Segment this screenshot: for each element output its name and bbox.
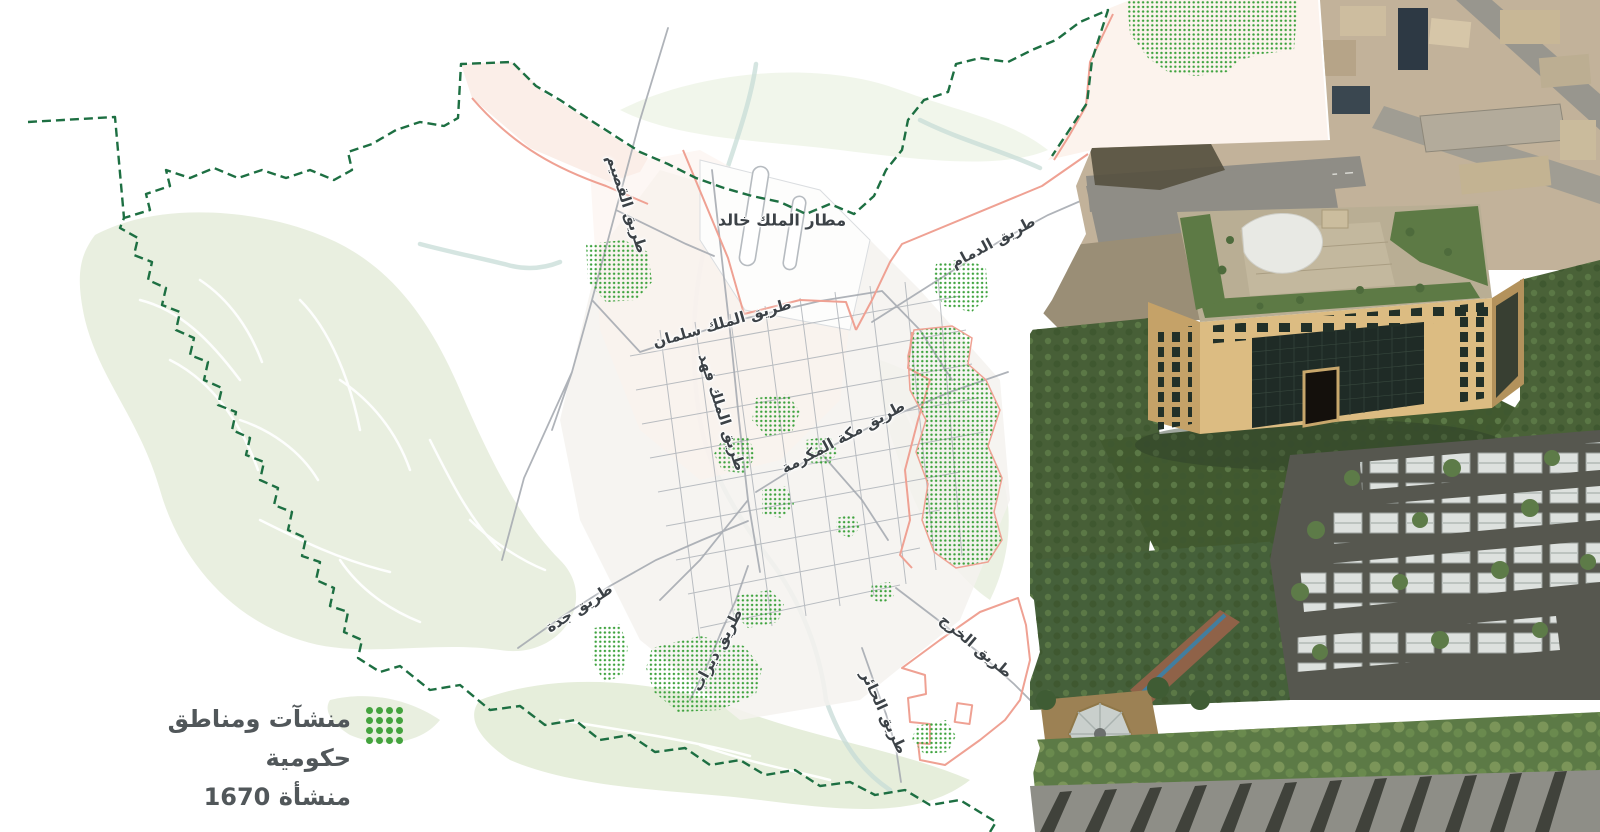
facility-dot-grid-icon [366,707,403,744]
legend-count: 1670 منشأة [95,778,351,817]
roof-canopy [1242,213,1323,273]
riyadh-government-facilities-map: طريق القصيم مطار الملك خالد طريق الدمام … [0,0,1600,832]
legend-label: منشآت ومناطق حكومية [95,700,351,778]
legend: منشآت ومناطق حكومية 1670 منشأة [95,700,403,817]
legend-text: منشآت ومناطق حكومية 1670 منشأة [95,700,351,817]
tent-parking-lot [1270,430,1600,700]
label-king-khalid-airport: مطار الملك خالد [718,211,846,230]
government-building [1148,204,1524,434]
